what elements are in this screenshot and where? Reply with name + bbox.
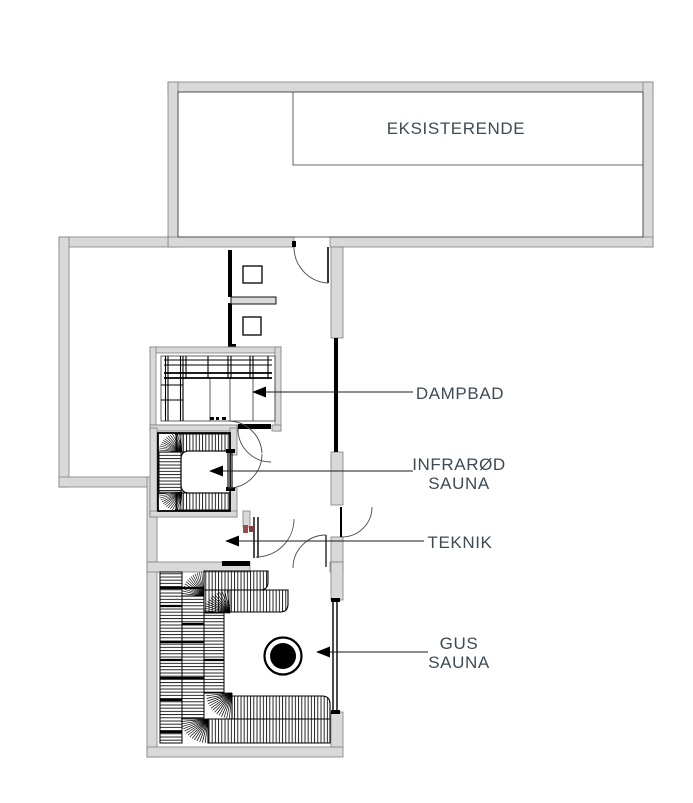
existing-room-outline [178,92,643,237]
label-infraroed-line1: INFRARØD [412,455,506,474]
toilet-area [231,266,276,335]
gus-door-leaf [222,561,250,566]
label-dampbad: DAMPBAD [416,384,504,403]
gus-benches [160,571,330,743]
room-infraroed-sauna [150,421,262,517]
teknik-hinge-marker [243,525,248,533]
arrow-gus [316,647,330,658]
arrow-teknik [225,536,239,547]
sauna-stove [265,638,302,675]
gus-glass-door [331,598,340,714]
label-gus-line1: GUS [440,634,479,653]
label-eksisterende: EKSISTERENDE [387,119,526,138]
teknik-hinge-marker [249,526,253,532]
arrow-dampbad [252,387,266,398]
toilet-fixture [243,317,261,335]
annotation-dampbad: DAMPBAD [252,384,504,403]
exterior-walls [59,82,653,757]
annotation-infraroed-sauna: INFRARØD SAUNA [209,455,506,493]
label-gus-line2: SAUNA [428,653,490,672]
room-teknik [243,517,294,558]
annotation-teknik: TEKNIK [225,533,493,552]
annotation-gus-sauna: GUS SAUNA [316,634,490,672]
toilet-fixture [243,266,262,283]
dampbad-benches [161,356,275,421]
floor-plan-drawing: DAMPBAD INFRARØD SAUNA TEKNIK GUS SAUNA … [0,0,693,803]
room-gus-sauna [160,571,340,743]
floor-plan-page: DAMPBAD INFRARØD SAUNA TEKNIK GUS SAUNA … [0,0,693,803]
label-infraroed-line2: SAUNA [428,474,490,493]
label-teknik: TEKNIK [427,533,492,552]
